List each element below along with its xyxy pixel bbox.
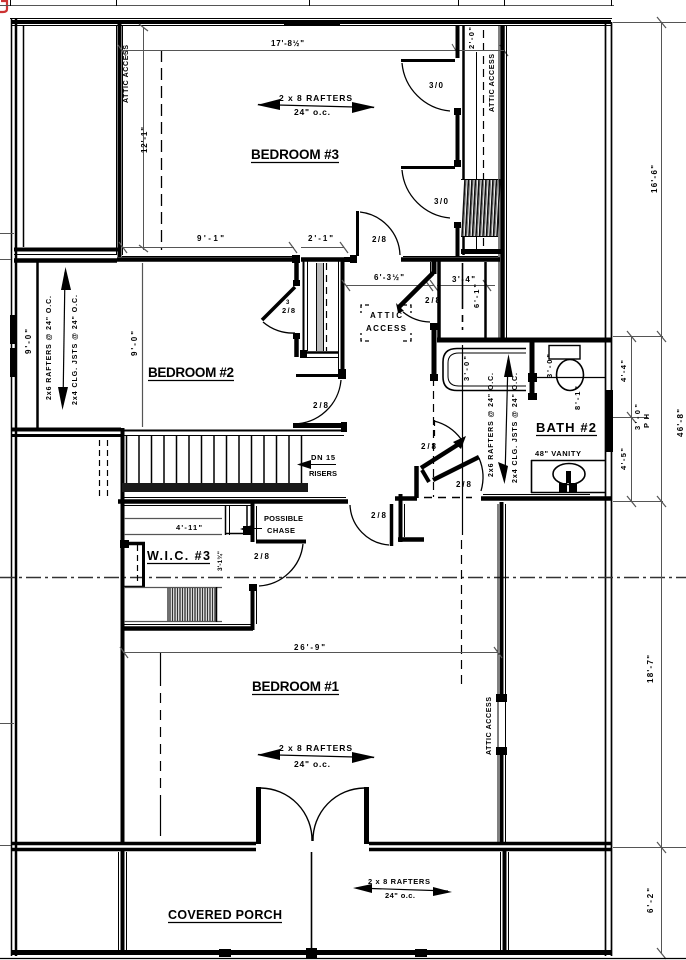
svg-text:2/8: 2/8	[372, 235, 387, 244]
svg-text:DN 15: DN 15	[311, 453, 335, 462]
svg-text:3'-0": 3'-0"	[633, 404, 642, 430]
svg-text:24" o.c.: 24" o.c.	[385, 891, 415, 900]
svg-text:2 x 8 RAFTERS: 2 x 8 RAFTERS	[279, 743, 352, 753]
svg-text:3'-1¾": 3'-1¾"	[216, 551, 224, 571]
svg-text:2x6 RAFTERS @ 24" O.C.: 2x6 RAFTERS @ 24" O.C.	[488, 373, 495, 477]
svg-text:2/8: 2/8	[313, 401, 329, 410]
svg-text:9'-1": 9'-1"	[197, 234, 224, 243]
svg-text:24" o.c.: 24" o.c.	[294, 759, 330, 769]
svg-text:2'-0": 2'-0"	[467, 27, 476, 49]
svg-text:3/0: 3/0	[434, 197, 449, 206]
svg-text:16'-6": 16'-6"	[650, 165, 659, 193]
svg-text:18'-7": 18'-7"	[646, 655, 655, 683]
svg-text:COVERED PORCH: COVERED PORCH	[168, 908, 282, 922]
svg-text:12'-1": 12'-1"	[140, 127, 149, 153]
svg-text:POSSIBLE: POSSIBLE	[264, 514, 303, 523]
svg-text:4'-5": 4'-5"	[619, 448, 628, 470]
svg-text:2/8: 2/8	[371, 511, 387, 520]
svg-text:8'-1": 8'-1"	[573, 386, 582, 410]
svg-text:46'-8": 46'-8"	[676, 409, 685, 437]
svg-text:2'-1": 2'-1"	[308, 234, 333, 243]
svg-text:9'-0": 9'-0"	[130, 331, 139, 356]
svg-text:2/8: 2/8	[254, 552, 270, 561]
svg-text:2 x 8 RAFTERS: 2 x 8 RAFTERS	[279, 93, 352, 103]
svg-text:17'-8½": 17'-8½"	[271, 39, 304, 48]
svg-text:48" VANITY: 48" VANITY	[535, 449, 581, 458]
svg-text:2x4 CLG. JSTS @ 24" O.C.: 2x4 CLG. JSTS @ 24" O.C.	[512, 373, 519, 483]
svg-text:RISERS: RISERS	[309, 469, 337, 478]
svg-text:ATTIC ACCESS: ATTIC ACCESS	[486, 697, 493, 755]
svg-text:CHASE: CHASE	[267, 526, 295, 535]
svg-text:3'-0": 3'-0"	[462, 356, 471, 381]
svg-text:6'-1": 6'-1"	[472, 284, 481, 308]
svg-text:2/8: 2/8	[282, 306, 295, 315]
svg-text:2 x 8 RAFTERS: 2 x 8 RAFTERS	[368, 877, 430, 886]
svg-text:W.I.C. #3: W.I.C. #3	[147, 549, 210, 563]
svg-text:BEDROOM #1: BEDROOM #1	[252, 679, 339, 694]
svg-text:BATH #2: BATH #2	[536, 420, 596, 435]
svg-text:ATTIC: ATTIC	[370, 311, 402, 320]
svg-text:BEDROOM #2: BEDROOM #2	[148, 365, 234, 380]
svg-text:6'-2": 6'-2"	[646, 888, 655, 913]
svg-text:9'-0": 9'-0"	[24, 329, 33, 354]
svg-text:24" o.c.: 24" o.c.	[294, 107, 330, 117]
svg-text:3'-0": 3'-0"	[545, 354, 554, 378]
svg-text:2/8: 2/8	[456, 480, 472, 489]
svg-text:2x4 CLG. JSTS @ 24" O.C.: 2x4 CLG. JSTS @ 24" O.C.	[72, 295, 79, 405]
svg-text:2x6 RAFTERS @ 24" O.C.: 2x6 RAFTERS @ 24" O.C.	[46, 296, 53, 400]
svg-text:2/8: 2/8	[421, 442, 437, 451]
svg-text:ATTIC ACCESS: ATTIC ACCESS	[489, 54, 496, 112]
svg-text:BEDROOM #3: BEDROOM #3	[251, 147, 339, 162]
svg-text:4'-11": 4'-11"	[176, 523, 202, 532]
svg-text:3'-4": 3'-4"	[452, 275, 475, 284]
svg-text:4'-4": 4'-4"	[619, 360, 628, 382]
svg-text:3/0: 3/0	[429, 81, 444, 90]
